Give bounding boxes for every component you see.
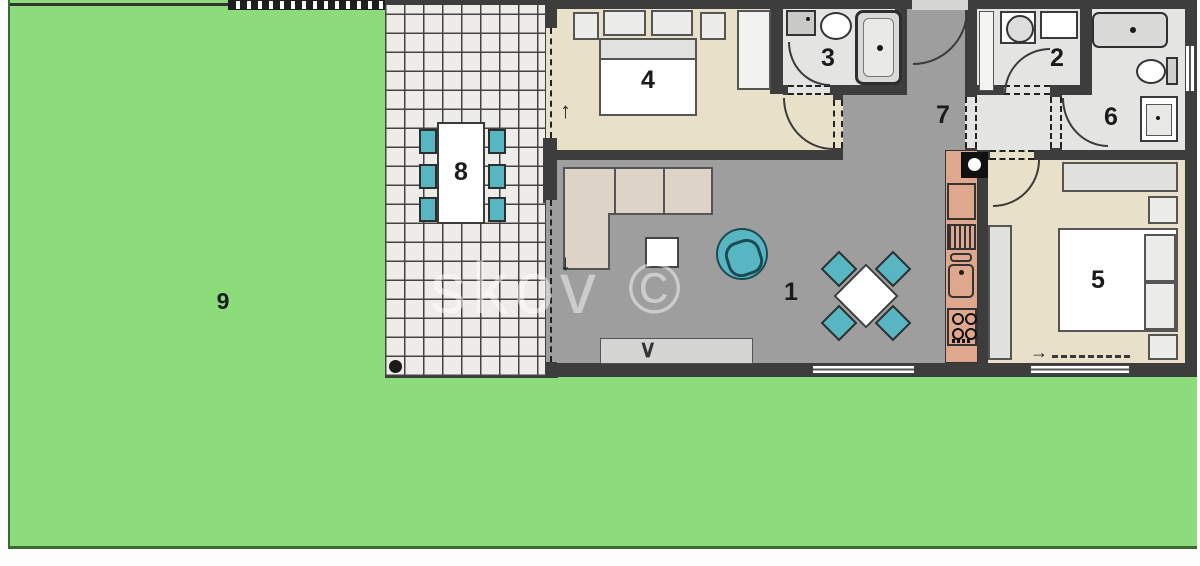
bathtub bbox=[1092, 12, 1168, 48]
water-heater bbox=[961, 152, 988, 178]
door-threshold bbox=[1050, 97, 1062, 148]
double-bed bbox=[1058, 228, 1178, 332]
wall bbox=[557, 150, 833, 160]
pillow bbox=[603, 10, 646, 36]
nightstand bbox=[700, 12, 726, 40]
fridge bbox=[947, 183, 976, 220]
bedroom4-label: 4 bbox=[633, 68, 663, 93]
wardrobe bbox=[737, 10, 771, 90]
terrace-chair bbox=[488, 197, 506, 222]
exit-arrow-right: → bbox=[1030, 343, 1048, 361]
wall bbox=[770, 9, 783, 94]
door-threshold bbox=[833, 100, 843, 148]
living-room-label: 1 bbox=[778, 280, 804, 305]
armchair bbox=[716, 228, 768, 280]
tall-cabinet bbox=[979, 11, 994, 91]
wall bbox=[978, 150, 988, 363]
terrace-chair bbox=[419, 129, 437, 154]
entry-arrow-up: ↑ bbox=[560, 100, 571, 122]
hallway-label: 7 bbox=[930, 103, 956, 128]
shower bbox=[855, 10, 902, 85]
bedroom5-label: 5 bbox=[1085, 268, 1111, 293]
door-threshold bbox=[788, 85, 830, 95]
terrace-drain bbox=[389, 360, 402, 373]
closet bbox=[988, 225, 1012, 360]
faucet bbox=[950, 253, 972, 262]
balcony-door-opening bbox=[546, 28, 557, 138]
watermark: skov © bbox=[430, 248, 687, 330]
entrance-opening bbox=[912, 0, 968, 10]
terrace-chair bbox=[488, 129, 506, 154]
window bbox=[812, 365, 915, 374]
terrace-label: 8 bbox=[446, 160, 476, 185]
toilet bbox=[820, 12, 852, 40]
toilet bbox=[1136, 59, 1166, 84]
dish-drainer bbox=[947, 224, 976, 250]
wall bbox=[1080, 9, 1092, 95]
pillow bbox=[651, 10, 693, 36]
sofa bbox=[563, 167, 713, 215]
door-threshold bbox=[965, 97, 977, 148]
sink bbox=[786, 10, 816, 36]
floor-plan: 9 8 bbox=[0, 0, 1200, 566]
tv-cabinet: ∨ bbox=[600, 338, 753, 364]
toilet-tank bbox=[1166, 57, 1178, 85]
window bbox=[1185, 45, 1195, 92]
terrace-chair bbox=[419, 164, 437, 189]
terrace-chair bbox=[488, 164, 506, 189]
door-threshold bbox=[990, 150, 1034, 160]
window bbox=[1030, 365, 1130, 374]
terrace-chair bbox=[419, 197, 437, 222]
nightstand bbox=[573, 12, 599, 40]
nightstand bbox=[1148, 334, 1178, 360]
sink bbox=[1140, 96, 1178, 142]
exit-dashed-path bbox=[1052, 355, 1130, 358]
counter bbox=[1040, 11, 1078, 39]
tv-mark: ∨ bbox=[639, 335, 657, 364]
fence-hatch-strip bbox=[228, 0, 386, 10]
washing-machine bbox=[1000, 11, 1036, 44]
nightstand bbox=[1148, 196, 1178, 224]
wardrobe bbox=[1062, 162, 1178, 192]
stove bbox=[947, 308, 977, 346]
garden-label: 9 bbox=[208, 290, 238, 313]
kitchen-sink bbox=[948, 264, 974, 298]
